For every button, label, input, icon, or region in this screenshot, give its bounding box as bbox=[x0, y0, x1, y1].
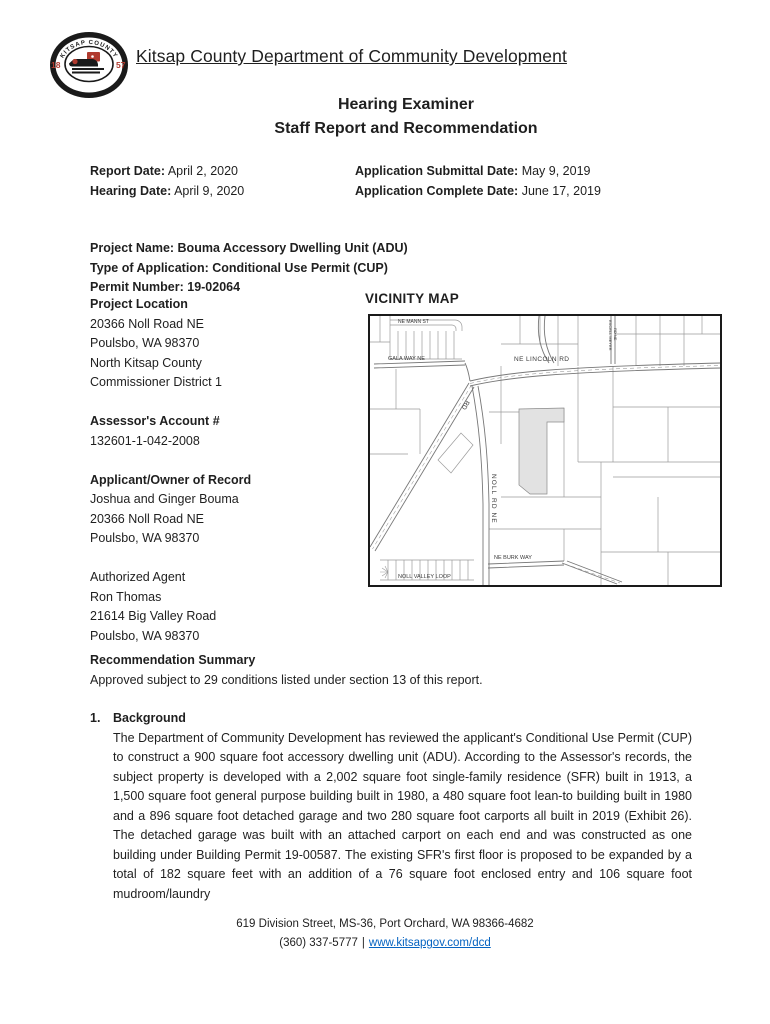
footer-separator: | bbox=[362, 937, 365, 949]
project-info-column: Project Location 20366 Noll Road NE Poul… bbox=[90, 295, 352, 646]
complete-date-label: Application Complete Date: bbox=[355, 184, 518, 198]
street-label-gala: GALA WAY NE bbox=[388, 356, 425, 362]
footer-address: 619 Division Street, MS-36, Port Orchard… bbox=[0, 915, 770, 934]
page-footer: 619 Division Street, MS-36, Port Orchard… bbox=[0, 915, 770, 953]
complete-date-value: June 17, 2019 bbox=[522, 184, 601, 198]
submittal-date-label: Application Submittal Date: bbox=[355, 164, 518, 178]
authorized-agent-heading: Authorized Agent bbox=[90, 568, 352, 588]
street-label-excell-meyer-1: EXCELL MEYER bbox=[608, 320, 613, 351]
info-line: Poulsbo, WA 98370 bbox=[90, 627, 352, 647]
info-line: 20366 Noll Road NE bbox=[90, 510, 352, 530]
street-label-lincoln: NE LINCOLN RD bbox=[514, 356, 569, 363]
kitsap-county-seal-logo: KITSAP COUNTY WASHINGTON 18 57 bbox=[47, 29, 131, 101]
dates-section: Report Date: April 2, 2020 Application S… bbox=[90, 162, 692, 201]
vicinity-map: NE MANN ST GALA WAY NE NE LINCOLN RD RD … bbox=[368, 314, 722, 587]
recommendation-summary-section: Recommendation Summary Approved subject … bbox=[90, 651, 692, 690]
applicant-owner-heading: Applicant/Owner of Record bbox=[90, 471, 352, 491]
submittal-date-value: May 9, 2019 bbox=[522, 164, 591, 178]
background-heading-row: 1.Background bbox=[90, 709, 692, 729]
seal-year-right: 57 bbox=[116, 60, 126, 70]
report-title-line2: Staff Report and Recommendation bbox=[90, 117, 722, 141]
street-label-noll-valley: NOLL VALLEY LOOP bbox=[398, 574, 451, 580]
footer-contact-row: (360) 337-5777|www.kitsapgov.com/dcd bbox=[0, 934, 770, 953]
vicinity-map-title: VICINITY MAP bbox=[365, 291, 459, 306]
street-label-burk: NE BURK WAY bbox=[494, 555, 532, 561]
project-name-line: Project Name: Bouma Accessory Dwelling U… bbox=[90, 239, 692, 259]
info-line: Joshua and Ginger Bouma bbox=[90, 490, 352, 510]
hearing-date-label: Hearing Date: bbox=[90, 184, 171, 198]
seal-year-left: 18 bbox=[51, 60, 61, 70]
section-number: 1. bbox=[90, 709, 113, 729]
report-date-value: April 2, 2020 bbox=[168, 164, 238, 178]
assessor-account-heading: Assessor's Account # bbox=[90, 412, 352, 432]
submittal-date-row: Application Submittal Date: May 9, 2019 bbox=[355, 162, 692, 182]
street-label-excell-meyer-2: RD NE bbox=[613, 328, 618, 341]
hearing-date-row: Hearing Date: April 9, 2020 bbox=[90, 182, 355, 202]
info-line: Poulsbo, WA 98370 bbox=[90, 529, 352, 549]
info-line: Ron Thomas bbox=[90, 588, 352, 608]
background-section: 1.Background The Department of Community… bbox=[90, 709, 692, 904]
project-identification: Project Name: Bouma Accessory Dwelling U… bbox=[90, 239, 692, 298]
project-location-heading: Project Location bbox=[90, 295, 352, 315]
street-label-mann: NE MANN ST bbox=[398, 319, 429, 325]
report-title: Hearing Examiner Staff Report and Recomm… bbox=[90, 93, 722, 141]
info-line: 21614 Big Valley Road bbox=[90, 607, 352, 627]
footer-phone: (360) 337-5777 bbox=[279, 937, 358, 949]
street-label-noll: NOLL RD NE bbox=[490, 474, 497, 524]
recommendation-summary-heading: Recommendation Summary bbox=[90, 651, 692, 671]
application-type-line: Type of Application: Conditional Use Per… bbox=[90, 259, 692, 279]
report-date-label: Report Date: bbox=[90, 164, 165, 178]
hearing-date-value: April 9, 2020 bbox=[174, 184, 244, 198]
background-paragraph: The Department of Community Development … bbox=[113, 729, 692, 905]
info-line: North Kitsap County bbox=[90, 354, 352, 374]
staff-report-page: KITSAP COUNTY WASHINGTON 18 57 Kitsap Co… bbox=[0, 0, 770, 1024]
complete-date-row: Application Complete Date: June 17, 2019 bbox=[355, 182, 692, 202]
recommendation-summary-body: Approved subject to 29 conditions listed… bbox=[90, 671, 692, 691]
report-title-line1: Hearing Examiner bbox=[90, 93, 722, 117]
background-heading: Background bbox=[113, 711, 186, 725]
info-line: 132601-1-042-2008 bbox=[90, 432, 352, 452]
info-line: Poulsbo, WA 98370 bbox=[90, 334, 352, 354]
report-date-row: Report Date: April 2, 2020 bbox=[90, 162, 355, 182]
info-line: Commissioner District 1 bbox=[90, 373, 352, 393]
footer-link[interactable]: www.kitsapgov.com/dcd bbox=[369, 937, 491, 949]
department-title: Kitsap County Department of Community De… bbox=[136, 46, 567, 67]
info-line: 20366 Noll Road NE bbox=[90, 315, 352, 335]
